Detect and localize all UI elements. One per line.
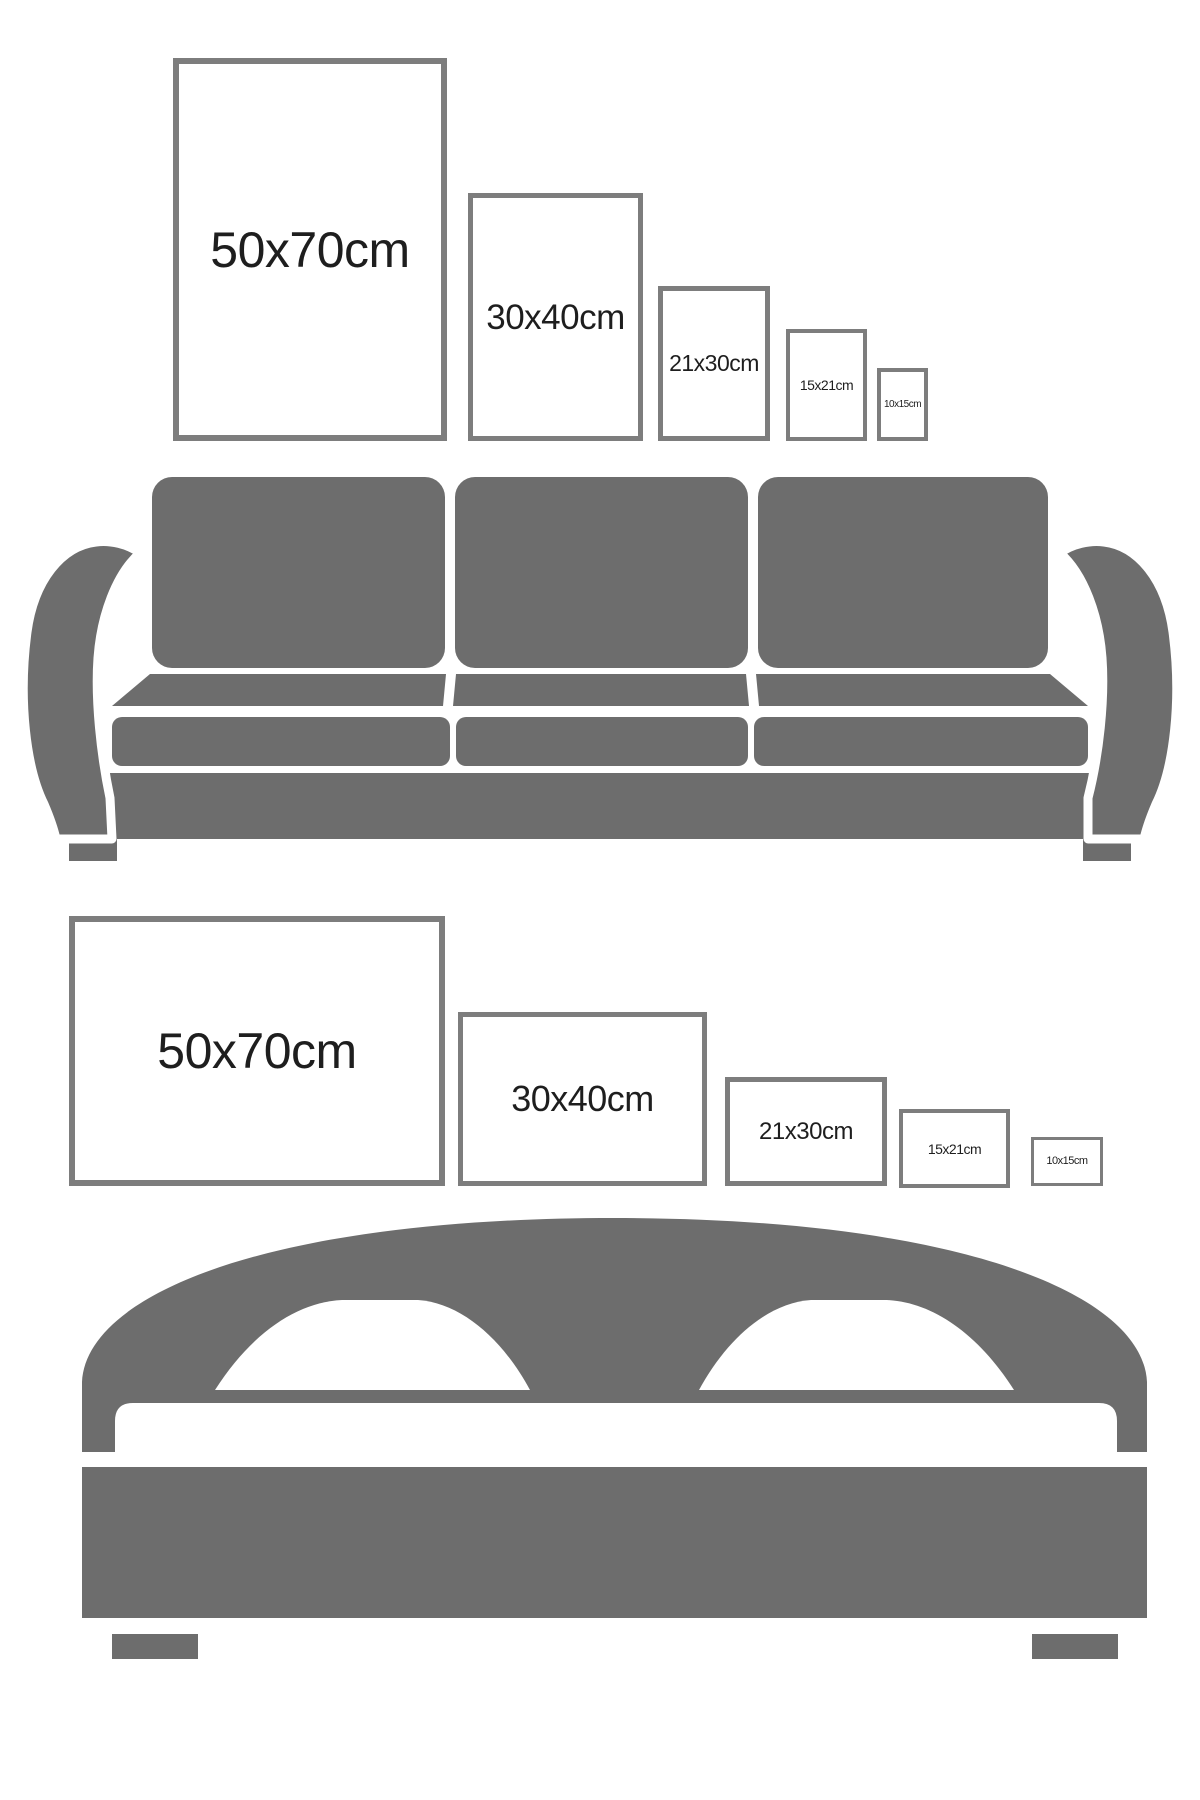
sofa-seat-cushion-right <box>754 717 1088 766</box>
frame-landscape-30x40: 30x40cm <box>458 1012 707 1186</box>
sofa-back-cushion-left <box>152 477 445 668</box>
frame-landscape-15x21: 15x21cm <box>899 1109 1010 1188</box>
frame-label: 30x40cm <box>511 1081 654 1117</box>
bed-icon <box>82 1218 1147 1659</box>
frame-portrait-21x30: 21x30cm <box>658 286 770 441</box>
frame-portrait-10x15: 10x15cm <box>877 368 928 441</box>
bed-base <box>82 1467 1147 1618</box>
frame-landscape-50x70: 50x70cm <box>69 916 445 1186</box>
bed-foot-right <box>1032 1634 1118 1659</box>
sofa-seat-deck-right <box>756 674 1088 706</box>
sofa-base <box>58 773 1142 839</box>
frame-label: 15x21cm <box>800 378 853 392</box>
sofa-seat-deck-left <box>112 674 446 706</box>
bed-foot-left <box>112 1634 198 1659</box>
frame-portrait-30x40: 30x40cm <box>468 193 643 441</box>
frame-label: 10x15cm <box>1046 1156 1087 1167</box>
frame-landscape-21x30: 21x30cm <box>725 1077 887 1186</box>
sofa-back-cushion-middle <box>455 477 748 668</box>
frame-label: 30x40cm <box>486 300 625 335</box>
frame-portrait-15x21: 15x21cm <box>786 329 867 441</box>
frame-label: 15x21cm <box>928 1142 981 1156</box>
sofa-seat-cushion-left <box>112 717 450 766</box>
frame-label: 21x30cm <box>759 1120 853 1144</box>
frame-label: 50x70cm <box>210 225 409 275</box>
sofa-seat-cushion-middle <box>456 717 748 766</box>
size-guide-diagram: 50x70cm 30x40cm 21x30cm 15x21cm 10x15cm … <box>0 0 1200 1800</box>
frame-portrait-50x70: 50x70cm <box>173 58 447 441</box>
frame-label: 10x15cm <box>884 400 921 410</box>
sofa-icon <box>23 477 1176 861</box>
frame-label: 50x70cm <box>157 1026 356 1076</box>
sofa-seat-deck-middle <box>453 674 749 706</box>
sofa-back-cushion-right <box>758 477 1048 668</box>
frame-label: 21x30cm <box>669 352 759 375</box>
bed-headboard <box>82 1218 1147 1452</box>
frame-landscape-10x15: 10x15cm <box>1031 1137 1103 1186</box>
